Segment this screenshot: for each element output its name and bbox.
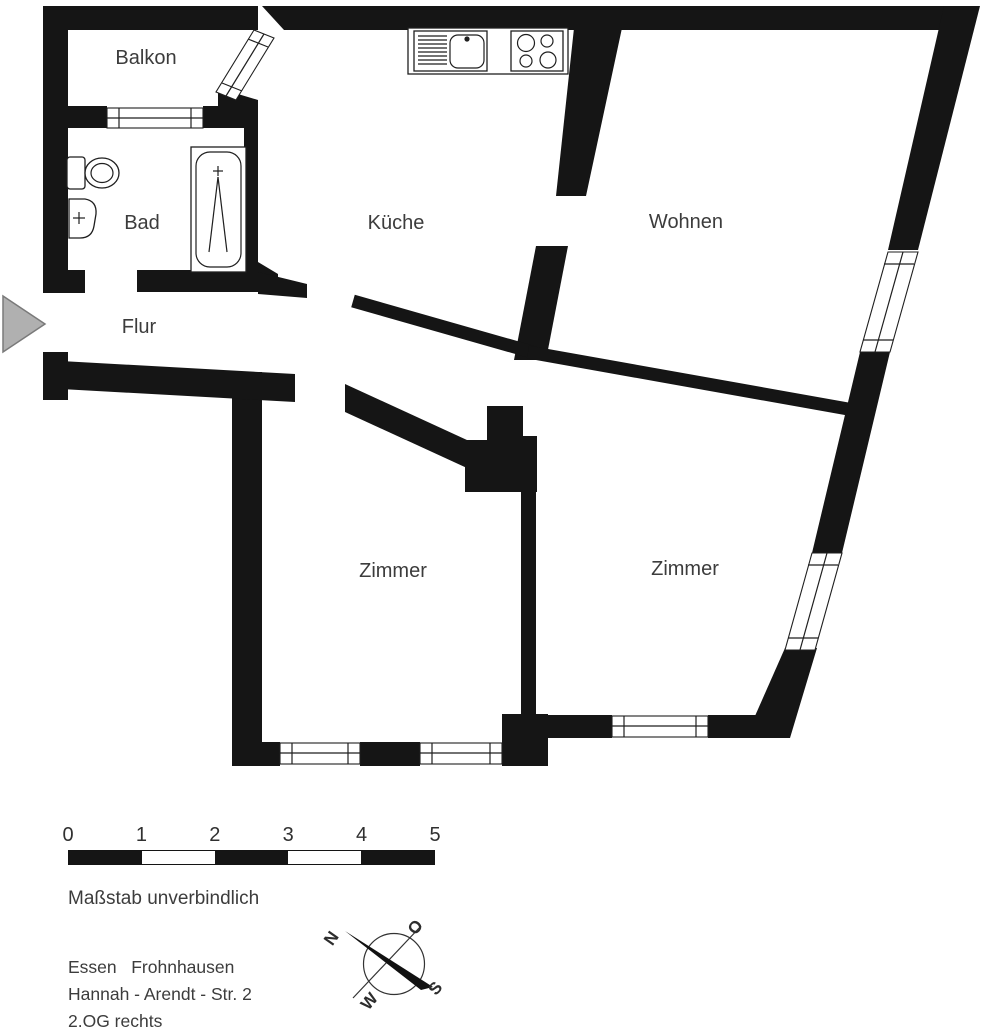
wall <box>43 352 68 400</box>
room-label-bad: Bad <box>124 212 160 234</box>
scale-bar-ruler <box>68 850 435 865</box>
scale-tick-labels: 0 1 2 3 4 5 <box>68 824 435 848</box>
washbasin-icon <box>69 199 96 238</box>
wall <box>43 270 85 293</box>
room-label-zimmer-rechts: Zimmer <box>651 558 719 580</box>
kitchen-counter <box>408 28 568 74</box>
room-label-zimmer-links: Zimmer <box>359 560 427 582</box>
window <box>216 30 274 100</box>
address-floor: 2.OG rechts <box>68 1008 252 1035</box>
room-label-flur: Flur <box>122 316 157 338</box>
scale-segment <box>215 851 288 864</box>
floor-plan: Balkon Bad Küche Wohnen Flur Zimmer Zimm… <box>0 0 981 810</box>
entrance-arrow-icon <box>3 296 45 352</box>
compass-rose: N O S W <box>318 904 458 1022</box>
wall <box>528 352 848 409</box>
room-label-wohnen: Wohnen <box>649 211 723 233</box>
wall <box>137 270 258 292</box>
bathtub-icon <box>191 147 246 272</box>
scale-tick-label: 2 <box>209 824 220 847</box>
scale-segment <box>288 851 361 864</box>
scale-segment <box>69 851 142 864</box>
compass-label-north: N <box>320 928 343 949</box>
scale-tick-label: 3 <box>283 824 294 847</box>
scale-segment <box>142 851 215 864</box>
address-city: Essen Frohnhausen <box>68 954 252 981</box>
wall <box>353 301 532 352</box>
toilet-icon <box>67 157 119 189</box>
compass-label-south: S <box>424 978 446 999</box>
window <box>107 108 203 128</box>
room-label-balkon: Balkon <box>115 47 176 69</box>
wall <box>888 6 980 250</box>
window <box>280 743 360 764</box>
scale-tick-label: 4 <box>356 824 367 847</box>
wall <box>258 272 307 298</box>
wall <box>345 384 480 474</box>
compass-label-west: W <box>357 988 382 1013</box>
wall <box>50 6 258 30</box>
wall <box>465 406 537 492</box>
wall <box>232 372 262 766</box>
scale-note: Maßstab unverbindlich <box>68 888 259 910</box>
address-block: Essen Frohnhausen Hannah - Arendt - Str.… <box>68 954 252 1035</box>
wall <box>812 352 890 553</box>
room-label-kueche: Küche <box>368 212 425 234</box>
window <box>785 553 842 650</box>
wall <box>360 742 420 766</box>
scale-tick-label: 0 <box>62 824 73 847</box>
kitchen-sink-icon <box>414 31 487 71</box>
wall <box>65 106 107 128</box>
window <box>612 716 708 737</box>
address-street: Hannah - Arendt - Str. 2 <box>68 981 252 1008</box>
scale-segment <box>361 851 434 864</box>
compass-needle-icon <box>345 931 433 990</box>
scale-tick-label: 5 <box>429 824 440 847</box>
window <box>860 252 918 352</box>
wall <box>262 6 980 30</box>
stove-icon <box>511 31 563 71</box>
wall <box>43 6 68 293</box>
wall <box>43 360 295 402</box>
scale-tick-label: 1 <box>136 824 147 847</box>
wall <box>521 490 536 742</box>
wall <box>708 715 770 738</box>
scale-bar: 0 1 2 3 4 5 <box>68 824 435 865</box>
compass-label-east: O <box>404 916 427 938</box>
window <box>420 743 502 764</box>
